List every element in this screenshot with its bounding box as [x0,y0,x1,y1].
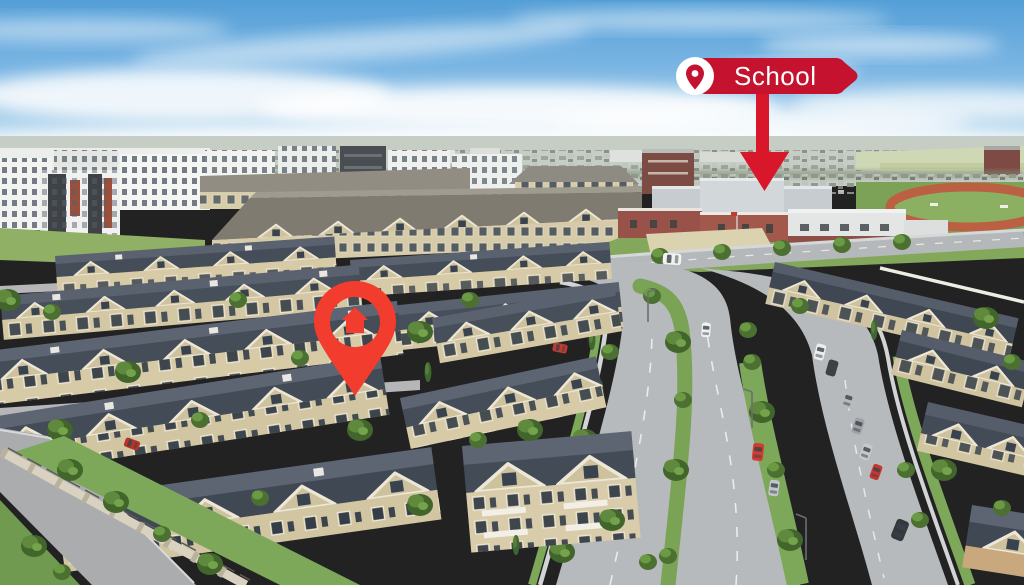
school-banner-label: School [734,61,817,91]
car-red [752,443,765,462]
car-parked-red [552,342,568,354]
townhouse-large-front [462,431,641,552]
car-white-van [662,253,681,266]
aerial-photo: School [0,0,1024,585]
arrow-stem [756,93,769,155]
corner-house [962,505,1024,582]
car-white [701,323,711,338]
